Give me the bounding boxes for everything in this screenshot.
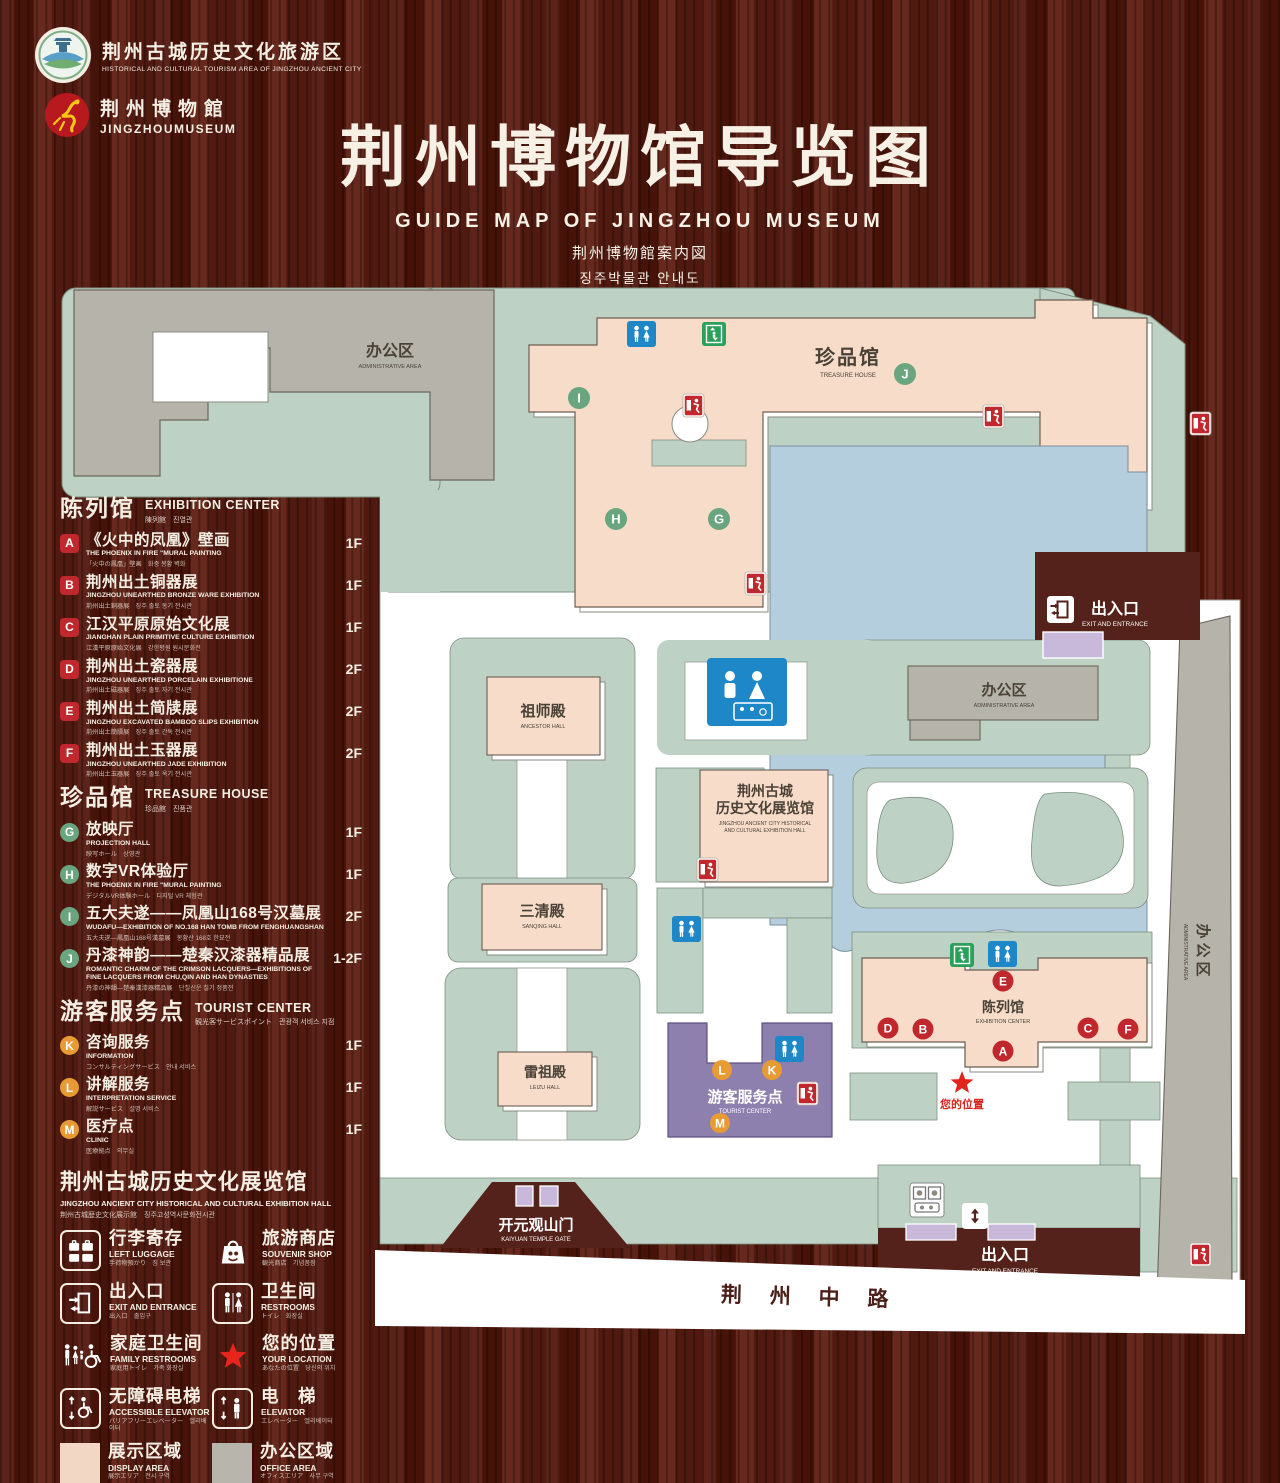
- badge-D: D: [60, 660, 79, 679]
- exit-run-icon: [797, 1082, 818, 1105]
- legend-item-body: 江汉平原原始文化展JIANGHAN PLAIN PRIMITIVE CULTUR…: [86, 617, 325, 653]
- legend-item-title: 荆州出土瓷器展: [86, 659, 325, 675]
- family-restrooms-icon: [60, 1335, 102, 1377]
- accessible-elevator-icon: [60, 1388, 101, 1429]
- badge-J: J: [894, 363, 916, 385]
- legend-item-en: PROJECTION HALL: [86, 840, 325, 848]
- legend-item-sub: 荊州出土磁器展 징주 출토 자기 전시관: [86, 685, 325, 694]
- legend-item-body: 放映厅PROJECTION HALL映写ホール 상영관: [86, 822, 325, 858]
- garden: [853, 768, 1148, 908]
- legend-item-body: 讲解服务INTERPRETATION SERVICE解説サービス 설명 서비스: [86, 1077, 325, 1113]
- legend-icon-body: 无障碍电梯ACCESSIBLE ELEVATORバリアフリーエレベーター 엘리베…: [109, 1388, 212, 1433]
- legend-icon-title: 电 梯: [261, 1388, 362, 1406]
- legend-item-title: 咨询服务: [86, 1035, 325, 1051]
- legend-icon-en: RESTROOMS: [261, 1303, 362, 1311]
- svg-text:J: J: [901, 367, 908, 382]
- admin-topleft-label-en: ADMINISTRATIVE AREA: [359, 364, 422, 370]
- legend-icon-sub: 手荷物預かり 짐 보관: [109, 1261, 212, 1268]
- legend-item-floor: 1F: [332, 535, 362, 551]
- legend-section-title: 珍品馆: [60, 786, 135, 809]
- badge-M: M: [710, 1113, 730, 1133]
- legend-icon-en: SOUVENIR SHOP: [262, 1250, 362, 1258]
- legend-section-treasure: 珍品馆TREASURE HOUSE珍品館 진품관G放映厅PROJECTION H…: [60, 786, 362, 991]
- legend-icon-body: 展示区域DISPLAY AREA展示エリア 전시 구역: [108, 1443, 212, 1481]
- badge-H: H: [60, 865, 79, 884]
- legend-item-floor: 1F: [332, 619, 362, 635]
- badge-I: I: [568, 387, 590, 409]
- legend-section-title-en: EXHIBITION CENTER: [145, 499, 280, 512]
- restroom-icon: [672, 916, 701, 942]
- legend-item-body: 荆州出土铜器展JINGZHOU UNEARTHED BRONZE WARE EX…: [86, 575, 325, 611]
- left-luggage-icon: [60, 1230, 101, 1271]
- legend-item-en: THE PHOENIX IN FIRE "MURAL PAINTING: [86, 882, 325, 890]
- legend-item-sub: 解説サービス 설명 서비스: [86, 1104, 325, 1113]
- legend-item-J: J丹漆神韵——楚秦汉漆器精品展ROMANTIC CHARM OF THE CRI…: [60, 948, 362, 991]
- legend-item-B: B荆州出土铜器展JINGZHOU UNEARTHED BRONZE WARE E…: [60, 575, 362, 611]
- legend-icon-sub: 家庭用トイレ 가족 화장실: [110, 1366, 212, 1373]
- central-restroom-court: [657, 640, 880, 755]
- legend-icon-item-left-luggage: 行李寄存LEFT LUGGAGE手荷物預かり 짐 보관: [60, 1230, 212, 1272]
- badge-L: L: [712, 1060, 732, 1080]
- legend-item-floor: 1F: [332, 577, 362, 593]
- display-area-swatch: [60, 1443, 100, 1483]
- exit-run-icon: [1190, 412, 1211, 435]
- exit-run-icon: [697, 858, 718, 881]
- legend-panel: 陈列馆EXHIBITION CENTER陳列館 진열관A《火中的凤凰》壁画THE…: [60, 497, 362, 1483]
- legend-icon-item-family-restrooms: 家庭卫生间FAMILY RESTROOMS家庭用トイレ 가족 화장실: [60, 1335, 212, 1377]
- legend-item-body: 《火中的凤凰》壁画THE PHOENIX IN FIRE "MURAL PAIN…: [86, 533, 325, 569]
- restroom-family-icon: [707, 658, 787, 726]
- legend-item-sub: 映写ホール 상영관: [86, 849, 325, 858]
- hall-heading-zh: 荆州古城历史文化展览馆: [60, 1165, 362, 1196]
- legend-item-title: 数字VR体验厅: [86, 864, 325, 880]
- legend-item-en: INFORMATION: [86, 1053, 325, 1061]
- sanqing-hall-label: 三清殿: [519, 902, 565, 920]
- legend-icon-title: 行李寄存: [109, 1230, 212, 1248]
- legend-item-title: 五大夫遂——凤凰山168号汉墓展: [86, 906, 325, 922]
- legend-icon-en: FAMILY RESTROOMS: [110, 1355, 212, 1363]
- legend-item-L: L讲解服务INTERPRETATION SERVICE解説サービス 설명 서비스…: [60, 1077, 362, 1113]
- legend-section-exhibition: 陈列馆EXHIBITION CENTER陳列館 진열관A《火中的凤凰》壁画THE…: [60, 497, 362, 778]
- legend-item-floor: 2F: [332, 745, 362, 761]
- legend-icon-sub: 出入口 출입구: [109, 1314, 212, 1321]
- legend-icon-en: LEFT LUGGAGE: [109, 1250, 212, 1258]
- legend-item-sub: 荊州出土銅器展 징주 출토 동기 전시관: [86, 601, 325, 610]
- legend-item-en: JIANGHAN PLAIN PRIMITIVE CULTURE EXHIBIT…: [86, 634, 325, 642]
- legend-icon-body: 家庭卫生间FAMILY RESTROOMS家庭用トイレ 가족 화장실: [110, 1335, 212, 1373]
- legend-section-title: 陈列馆: [60, 497, 135, 520]
- legend-section-header: 珍品馆TREASURE HOUSE珍品館 진품관: [60, 786, 362, 814]
- legend-icon-body: 出入口EXIT AND ENTRANCE出入口 출입구: [109, 1283, 212, 1321]
- restroom-icon: [988, 941, 1017, 967]
- badge-L: L: [60, 1078, 79, 1097]
- badge-A: A: [60, 534, 79, 553]
- badge-E: E: [993, 971, 1014, 992]
- legend-section-title-sub: 観光客サービスポイント 관광객 서비스 지점: [195, 1017, 334, 1027]
- legend-icon-title: 展示区域: [108, 1443, 212, 1461]
- legend-section-title-right: TOURIST CENTER観光客サービスポイント 관광객 서비스 지점: [195, 1000, 334, 1028]
- tourist-center-label-en: TOURIST CENTER: [719, 1109, 772, 1115]
- office-area-swatch: [212, 1443, 252, 1483]
- exit-run-icon: [683, 394, 704, 417]
- legend-icon-en: OFFICE AREA: [260, 1464, 362, 1472]
- leizu-hall-label-en: LEIZU HALL: [530, 1085, 560, 1091]
- legend-item-sub: 医療拠点 의무실: [86, 1146, 325, 1155]
- hall-heading-en: JINGZHOU ANCIENT CITY HISTORICAL AND CUL…: [60, 1199, 362, 1208]
- badge-K: K: [60, 1036, 79, 1055]
- legend-item-I: I五大夫遂——凤凰山168号汉墓展WUDAFU—EXHIBITION OF NO…: [60, 906, 362, 942]
- legend-item-title: 讲解服务: [86, 1077, 325, 1093]
- legend-item-floor: 2F: [332, 703, 362, 719]
- badge-F: F: [60, 744, 79, 763]
- restroom-icon: [627, 321, 656, 347]
- legend-icon-en: DISPLAY AREA: [108, 1464, 212, 1472]
- leizu-hall-block: 雷祖殿 LEIZU HALL: [445, 968, 640, 1140]
- legend-item-sub: 荊州出土玉器展 징주 출토 옥기 전시관: [86, 769, 325, 778]
- legend-icon-item-office-area: 办公区域OFFICE AREAオフィスエリア 사무 구역: [212, 1443, 362, 1483]
- legend-item-en: WUDAFU—EXHIBITION OF NO.168 HAN TOMB FRO…: [86, 924, 325, 932]
- exit-run-icon: [983, 405, 1004, 428]
- ancestor-hall-block: 祖师殿 ANCESTOR HALL: [450, 638, 635, 880]
- your-location-icon: [212, 1335, 254, 1377]
- svg-text:M: M: [715, 1117, 725, 1131]
- legend-icon-title: 卫生间: [261, 1283, 362, 1301]
- svg-text:K: K: [768, 1064, 777, 1078]
- security-scanner-icon: [910, 1183, 944, 1217]
- restroom-icon: [775, 1036, 804, 1062]
- legend-icon-en: ELEVATOR: [261, 1408, 362, 1416]
- legend-item-body: 咨询服务INFORMATIONコンサルティングサービス 안내 서비스: [86, 1035, 325, 1071]
- legend-item-en: JINGZHOU UNEARTHED BRONZE WARE EXHIBITIO…: [86, 592, 325, 600]
- exit-topright-label-en: EXIT AND ENTRANCE: [1082, 621, 1148, 628]
- legend-item-M: M医疗点CLINIC医療拠点 의무실1F: [60, 1119, 362, 1155]
- legend-icon-en: YOUR LOCATION: [262, 1355, 362, 1363]
- badge-K: K: [762, 1060, 782, 1080]
- svg-text:F: F: [1124, 1023, 1131, 1037]
- legend-icon-sub: オフィスエリア 사무 구역: [260, 1474, 362, 1481]
- tourist-center-label: 游客服务点: [707, 1088, 782, 1106]
- exit-bottom-label: 出入口: [981, 1245, 1029, 1264]
- legend-icon-title: 旅游商店: [262, 1230, 362, 1248]
- exhibition-center-label: 陈列馆: [982, 999, 1024, 1015]
- legend-icon-item-souvenir-shop: 旅游商店SOUVENIR SHOP観光商店 기념품점: [212, 1230, 362, 1272]
- legend-item-en: INTERPRETATION SERVICE: [86, 1095, 325, 1103]
- admin-topleft-label: 办公区: [366, 341, 414, 360]
- ancestor-hall-label-en: ANCESTOR HALL: [521, 724, 566, 730]
- legend-icon-sub: あなたの位置 당신의 위치: [262, 1366, 362, 1373]
- svg-text:I: I: [577, 391, 581, 406]
- legend-icon-body: 行李寄存LEFT LUGGAGE手荷物預かり 짐 보관: [109, 1230, 212, 1268]
- legend-section-header: 陈列馆EXHIBITION CENTER陳列館 진열관: [60, 497, 362, 525]
- legend-icon-item-your-location: 您的位置YOUR LOCATIONあなたの位置 당신의 위치: [212, 1335, 362, 1377]
- legend-item-en: ROMANTIC CHARM OF THE CRIMSON LACQUERS—E…: [86, 966, 325, 982]
- legend-icon-en: ACCESSIBLE ELEVATOR: [109, 1408, 212, 1416]
- legend-item-title: 江汉平原原始文化展: [86, 617, 325, 633]
- badge-A: A: [993, 1041, 1014, 1062]
- legend-item-sub: 「火中の鳳凰」壁画 화중 봉황 벽화: [86, 559, 325, 568]
- legend-icon-en: EXIT AND ENTRANCE: [109, 1303, 212, 1311]
- admin-right-label-en: ADMINISTRATIVE AREA: [974, 703, 1035, 709]
- badge-J: J: [60, 949, 79, 968]
- legend-icon-title: 出入口: [109, 1283, 212, 1301]
- badge-H: H: [605, 508, 627, 530]
- legend-icon-title: 办公区域: [260, 1443, 362, 1461]
- admin-right-label: 办公区: [981, 681, 1026, 699]
- svg-text:L: L: [718, 1064, 725, 1078]
- exit-run-icon: [1190, 1243, 1211, 1266]
- hall-heading-sub: 荆州古城歴史文化展示館 징주고성역사문화전시관: [60, 1210, 362, 1220]
- elevator-icon: [702, 322, 726, 346]
- badge-C: C: [60, 618, 79, 637]
- admin-building-right: 办公区 ADMINISTRATIVE AREA: [855, 640, 1150, 755]
- legend-icon-title: 无障碍电梯: [109, 1388, 212, 1406]
- legend-icon-grid: 行李寄存LEFT LUGGAGE手荷物預かり 짐 보관旅游商店SOUVENIR …: [60, 1230, 362, 1483]
- legend-item-floor: 2F: [332, 908, 362, 924]
- legend-section-title-en: TOURIST CENTER: [195, 1002, 334, 1015]
- legend-item-floor: 1F: [332, 1121, 362, 1137]
- legend-icon-title: 家庭卫生间: [110, 1335, 212, 1353]
- hist-hall-label-1: 荆州古城: [737, 783, 793, 799]
- legend-item-floor: 1F: [332, 1079, 362, 1095]
- legend-icon-sub: エレベーター 엘리베이터: [261, 1419, 362, 1426]
- legend-item-sub: 五大夫遂—鳳凰山168号漢墓展 봉황산 168호 한묘전: [86, 933, 325, 942]
- badge-E: E: [60, 702, 79, 721]
- treasure-house-label: 珍品馆: [815, 345, 881, 369]
- legend-item-floor: 1F: [332, 1037, 362, 1053]
- legend-item-floor: 1F: [332, 866, 362, 882]
- legend-item-floor: 1F: [332, 824, 362, 840]
- legend-item-sub: 荊州出土簡牘展 징주 출토 간독 전시관: [86, 727, 325, 736]
- legend-item-title: 荆州出土简牍展: [86, 701, 325, 717]
- legend-icon-item-exit-entrance: 出入口EXIT AND ENTRANCE出入口 출입구: [60, 1283, 212, 1324]
- hist-hall-label-2: 历史文化展览馆: [716, 800, 814, 816]
- legend-item-D: D荆州出土瓷器展JINGZHOU UNEARTHED PORCELAIN EXH…: [60, 659, 362, 695]
- exit-entrance-icon: [60, 1283, 101, 1324]
- legend-hall-heading: 荆州古城历史文化展览馆 JINGZHOU ANCIENT CITY HISTOR…: [60, 1165, 362, 1220]
- legend-item-sub: デジタルVR体験ホール 디지털 VR 체험관: [86, 891, 325, 900]
- legend-section-title: 游客服务点: [60, 1000, 185, 1023]
- legend-item-body: 丹漆神韵——楚秦汉漆器精品展ROMANTIC CHARM OF THE CRIM…: [86, 948, 325, 991]
- svg-text:A: A: [999, 1045, 1008, 1059]
- badge-D: D: [878, 1018, 899, 1039]
- svg-text:G: G: [714, 512, 724, 527]
- restrooms-icon: [212, 1283, 253, 1324]
- badge-B: B: [60, 576, 79, 595]
- legend-item-title: 荆州出土玉器展: [86, 743, 325, 759]
- legend-icon-body: 办公区域OFFICE AREAオフィスエリア 사무 구역: [260, 1443, 362, 1481]
- legend-icon-body: 旅游商店SOUVENIR SHOP観光商店 기념품점: [262, 1230, 362, 1268]
- souvenir-shop-icon: [212, 1230, 254, 1272]
- legend-icon-body: 您的位置YOUR LOCATIONあなたの位置 당신의 위치: [262, 1335, 362, 1373]
- legend-section-title-en: TREASURE HOUSE: [145, 788, 269, 801]
- elevator-icon: [212, 1388, 253, 1429]
- badge-M: M: [60, 1120, 79, 1139]
- admin-strip-label-en: ADMINISTRATIVE AREA: [1182, 924, 1188, 981]
- badge-G: G: [708, 508, 730, 530]
- badge-I: I: [60, 907, 79, 926]
- elevator-icon: [950, 943, 974, 967]
- legend-item-H: H数字VR体验厅THE PHOENIX IN FIRE "MURAL PAINT…: [60, 864, 362, 900]
- exit-door-icon: [1047, 596, 1074, 623]
- legend-icon-sub: トイレ 화장실: [261, 1314, 362, 1321]
- legend-item-title: 《火中的凤凰》壁画: [86, 533, 325, 549]
- legend-item-floor: 2F: [332, 661, 362, 677]
- legend-icon-title: 您的位置: [262, 1335, 362, 1353]
- legend-icon-sub: バリアフリーエレベーター 엘리베이터: [109, 1419, 212, 1433]
- badge-F: F: [1118, 1019, 1139, 1040]
- legend-item-title: 荆州出土铜器展: [86, 575, 325, 591]
- legend-item-en: JINGZHOU UNEARTHED PORCELAIN EXHIBITIONE: [86, 677, 325, 685]
- legend-item-floor: 1-2F: [332, 950, 362, 966]
- hist-hall-label-en1: JINGZHOU ANCIENT CITY HISTORICAL: [719, 821, 812, 827]
- badge-G: G: [60, 823, 79, 842]
- legend-icon-item-accessible-elevator: 无障碍电梯ACCESSIBLE ELEVATORバリアフリーエレベーター 엘리베…: [60, 1388, 212, 1433]
- kaiyuan-gate-label-en: KAIYUAN TEMPLE GATE: [501, 1237, 570, 1243]
- exit-run-icon: [745, 572, 766, 595]
- legend-item-A: A《火中的凤凰》壁画THE PHOENIX IN FIRE "MURAL PAI…: [60, 533, 362, 569]
- legend-icon-item-restrooms: 卫生间RESTROOMSトイレ 화장실: [212, 1283, 362, 1324]
- badge-C: C: [1078, 1018, 1099, 1039]
- legend-section-title-sub: 陳列館 진열관: [145, 515, 280, 525]
- legend-item-E: E荆州出土简牍展JINGZHOU EXCAVATED BAMBOO SLIPS …: [60, 701, 362, 737]
- legend-icon-item-elevator: 电 梯ELEVATORエレベーター 엘리베이터: [212, 1388, 362, 1433]
- leizu-hall-label: 雷祖殿: [524, 1064, 567, 1080]
- legend-item-body: 荆州出土瓷器展JINGZHOU UNEARTHED PORCELAIN EXHI…: [86, 659, 325, 695]
- legend-section-header: 游客服务点TOURIST CENTER観光客サービスポイント 관광객 서비스 지…: [60, 1000, 362, 1028]
- legend-item-title: 放映厅: [86, 822, 325, 838]
- legend-item-en: JINGZHOU EXCAVATED BAMBOO SLIPS EXHIBITI…: [86, 719, 325, 727]
- legend-item-en: CLINIC: [86, 1137, 325, 1145]
- elevator-arrows-icon: [962, 1203, 988, 1229]
- svg-text:C: C: [1084, 1022, 1093, 1036]
- road-label: 荆 州 中 路: [721, 1283, 900, 1312]
- legend-item-F: F荆州出土玉器展JINGZHOU UNEARTHED JADE EXHIBITI…: [60, 743, 362, 779]
- legend-item-K: K咨询服务INFORMATIONコンサルティングサービス 안내 서비스1F: [60, 1035, 362, 1071]
- legend-item-en: THE PHOENIX IN FIRE "MURAL PAINTING: [86, 550, 325, 558]
- legend-icon-body: 电 梯ELEVATORエレベーター 엘리베이터: [261, 1388, 362, 1426]
- treasure-house-label-en: TREASURE HOUSE: [820, 373, 876, 379]
- svg-text:H: H: [611, 512, 620, 527]
- legend-item-body: 荆州出土简牍展JINGZHOU EXCAVATED BAMBOO SLIPS E…: [86, 701, 325, 737]
- svg-text:B: B: [919, 1023, 928, 1037]
- historical-exhibition-hall: 荆州古城 历史文化展览馆 JINGZHOU ANCIENT CITY HISTO…: [656, 768, 833, 887]
- legend-item-C: C江汉平原原始文化展JIANGHAN PLAIN PRIMITIVE CULTU…: [60, 617, 362, 653]
- legend-icon-sub: 展示エリア 전시 구역: [108, 1474, 212, 1481]
- legend-section-title-sub: 珍品館 진품관: [145, 804, 269, 814]
- legend-item-title: 丹漆神韵——楚秦汉漆器精品展: [86, 948, 325, 964]
- hist-hall-label-en2: AND CULTURAL EXHIBITION HALL: [724, 828, 806, 834]
- legend-item-G: G放映厅PROJECTION HALL映写ホール 상영관1F: [60, 822, 362, 858]
- legend-section-tourist: 游客服务点TOURIST CENTER観光客サービスポイント 관광객 서비스 지…: [60, 1000, 362, 1155]
- ancestor-hall-label: 祖师殿: [519, 702, 566, 720]
- legend-item-sub: 丹漆の神韻—楚秦漢漆器精品展 단칠신운 칠기 정품전: [86, 983, 325, 992]
- exit-topright-label: 出入口: [1091, 599, 1139, 618]
- legend-icon-body: 卫生间RESTROOMSトイレ 화장실: [261, 1283, 362, 1321]
- legend-item-en: JINGZHOU UNEARTHED JADE EXHIBITION: [86, 761, 325, 769]
- legend-item-body: 数字VR体验厅THE PHOENIX IN FIRE "MURAL PAINTI…: [86, 864, 325, 900]
- legend-icon-item-display-area: 展示区域DISPLAY AREA展示エリア 전시 구역: [60, 1443, 212, 1483]
- legend-section-title-right: EXHIBITION CENTER陳列館 진열관: [145, 497, 280, 525]
- sanqing-hall-block: 三清殿 SANQING HALL: [448, 878, 637, 962]
- legend-section-title-right: TREASURE HOUSE珍品館 진품관: [145, 786, 269, 814]
- legend-item-title: 医疗点: [86, 1119, 325, 1135]
- svg-text:D: D: [884, 1022, 893, 1036]
- your-location-label: 您的位置: [940, 1097, 984, 1111]
- legend-item-sub: 江漢平原原始文化展 강한평원 원시문화전: [86, 643, 325, 652]
- legend-item-body: 荆州出土玉器展JINGZHOU UNEARTHED JADE EXHIBITIO…: [86, 743, 325, 779]
- badge-B: B: [913, 1019, 934, 1040]
- kaiyuan-gate-label: 开元观山门: [498, 1216, 573, 1234]
- legend-sections: 陈列馆EXHIBITION CENTER陳列館 진열관A《火中的凤凰》壁画THE…: [60, 497, 362, 1155]
- legend-item-body: 医疗点CLINIC医療拠点 의무실: [86, 1119, 325, 1155]
- svg-text:E: E: [999, 975, 1007, 989]
- legend-item-body: 五大夫遂——凤凰山168号汉墓展WUDAFU—EXHIBITION OF NO.…: [86, 906, 325, 942]
- exhibition-center-label-en: EXHIBITION CENTER: [976, 1019, 1030, 1025]
- legend-icon-sub: 観光商店 기념품점: [262, 1261, 362, 1268]
- sanqing-hall-label-en: SANQING HALL: [522, 924, 562, 930]
- admin-strip-label: 办公区: [1194, 923, 1212, 980]
- legend-item-sub: コンサルティングサービス 안내 서비스: [86, 1062, 325, 1071]
